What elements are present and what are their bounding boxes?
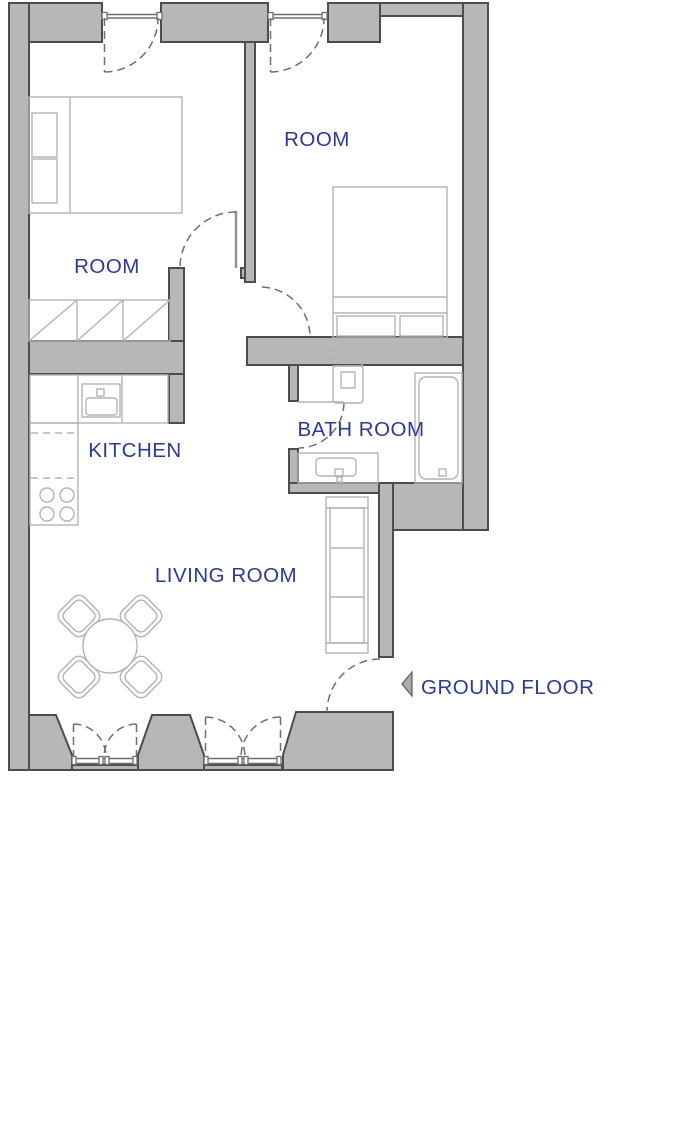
door-swing-icon — [180, 212, 236, 266]
door-swing-icon — [262, 287, 310, 337]
bath-sink-symbol — [298, 453, 378, 483]
pillow-symbol — [337, 316, 395, 336]
wall-entry-right — [379, 483, 393, 657]
bathroom-furniture — [298, 348, 462, 483]
window-room-right — [268, 13, 327, 73]
room-left-label: ROOM — [74, 255, 140, 278]
sofa-symbol — [326, 497, 368, 653]
walls — [9, 3, 488, 770]
window-swing-icon — [105, 18, 159, 72]
pillow-symbol — [32, 113, 57, 157]
wall-sill-window2 — [204, 765, 282, 770]
wall-bottom-left — [29, 715, 72, 770]
dining-table-symbol — [83, 619, 137, 673]
wall-bottom-middle — [138, 715, 204, 770]
room-left-furniture — [29, 97, 182, 341]
entrance-arrow-icon — [402, 672, 412, 696]
bathroom-label: BATH ROOM — [297, 418, 424, 441]
living-room-furniture — [55, 497, 368, 701]
french-window-1 — [72, 724, 138, 765]
wall-bathroom-left-upper — [289, 365, 298, 401]
kitchen-counter — [30, 375, 168, 423]
wall-kitchen-top — [29, 341, 184, 374]
wall-room-divider — [245, 42, 255, 282]
toilet-symbol — [333, 366, 363, 403]
stove-symbol — [40, 488, 74, 521]
french-window-2 — [204, 717, 282, 765]
door-room-right — [262, 287, 310, 337]
kitchen-lower-cabinet — [30, 423, 78, 525]
wall-top-middle — [161, 3, 268, 42]
wall-top-right-thin — [380, 3, 463, 16]
kitchen-label: KITCHEN — [88, 439, 181, 462]
wall-bathroom-bottom — [289, 483, 393, 493]
wall-bathroom-top — [247, 337, 463, 365]
door-swing-icon — [327, 659, 380, 712]
window-swing-icon — [206, 717, 246, 757]
window-swing-icon — [104, 724, 137, 757]
wall-sill-window1 — [72, 765, 138, 770]
wall-step-block — [393, 483, 463, 530]
floor-plan-page: ROOM ROOM KITCHEN BATH ROOM LIVING ROOM … — [0, 0, 700, 1145]
window-swing-icon — [241, 717, 281, 757]
room-right-furniture — [333, 187, 447, 338]
floor-plan-drawing: ROOM ROOM KITCHEN BATH ROOM LIVING ROOM … — [0, 0, 700, 1145]
living-room-label: LIVING ROOM — [155, 564, 297, 587]
window-swing-icon — [271, 18, 325, 72]
pillow-symbol — [400, 316, 443, 336]
wall-entrance-block — [283, 712, 393, 770]
wardrobe-symbol — [29, 300, 170, 341]
room-right-label: ROOM — [284, 128, 350, 151]
window-room-left — [102, 13, 162, 73]
floor-title-label: GROUND FLOOR — [421, 676, 594, 699]
kitchen-sink-symbol — [82, 384, 120, 417]
wall-divider-jamb — [241, 268, 245, 278]
window-swing-icon — [74, 724, 107, 757]
door-room-left — [180, 211, 236, 268]
double-bed-symbol — [29, 97, 182, 213]
wall-left — [9, 3, 29, 770]
wall-right — [463, 3, 488, 530]
pillow-symbol — [32, 159, 57, 203]
dining-set-symbol — [55, 592, 165, 701]
wall-top-right-thick — [328, 3, 380, 42]
door-entrance — [327, 659, 380, 712]
